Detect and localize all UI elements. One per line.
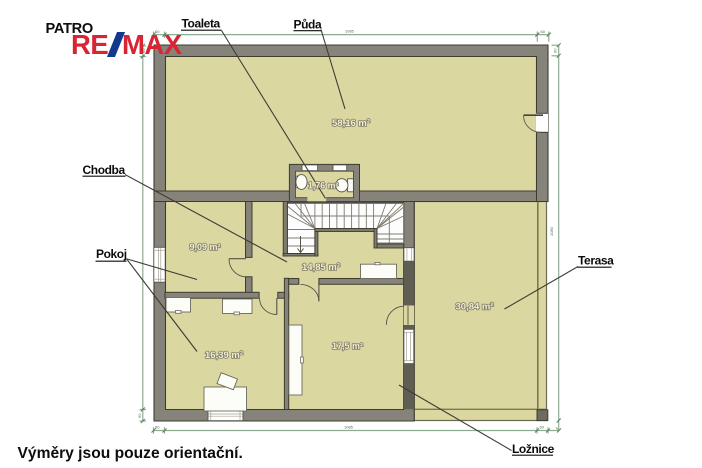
svg-text:1,76 m²: 1,76 m²	[308, 181, 338, 191]
svg-text:58,16 m²: 58,16 m²	[332, 118, 370, 129]
svg-text:Ložnice: Ložnice	[512, 442, 555, 456]
svg-text:1085: 1085	[344, 425, 354, 430]
svg-text:60: 60	[137, 413, 142, 418]
svg-text:60: 60	[541, 29, 546, 34]
svg-text:Půda: Půda	[294, 18, 322, 32]
svg-text:17,5 m²: 17,5 m²	[332, 341, 363, 351]
svg-text:1085: 1085	[345, 29, 355, 34]
svg-text:60: 60	[553, 48, 558, 53]
svg-text:Pokoj: Pokoj	[96, 247, 127, 261]
svg-text:16,39 m²: 16,39 m²	[205, 350, 243, 361]
svg-text:Toaleta: Toaleta	[182, 17, 221, 31]
svg-text:14,85 m²: 14,85 m²	[302, 262, 340, 273]
svg-text:60: 60	[540, 425, 545, 430]
svg-text:60: 60	[155, 425, 160, 430]
svg-text:1080: 1080	[549, 226, 554, 236]
svg-text:Chodba: Chodba	[83, 163, 126, 177]
svg-text:30,84 m²: 30,84 m²	[456, 302, 494, 313]
svg-text:9,09 m²: 9,09 m²	[190, 242, 221, 252]
svg-text:Terasa: Terasa	[578, 254, 614, 268]
